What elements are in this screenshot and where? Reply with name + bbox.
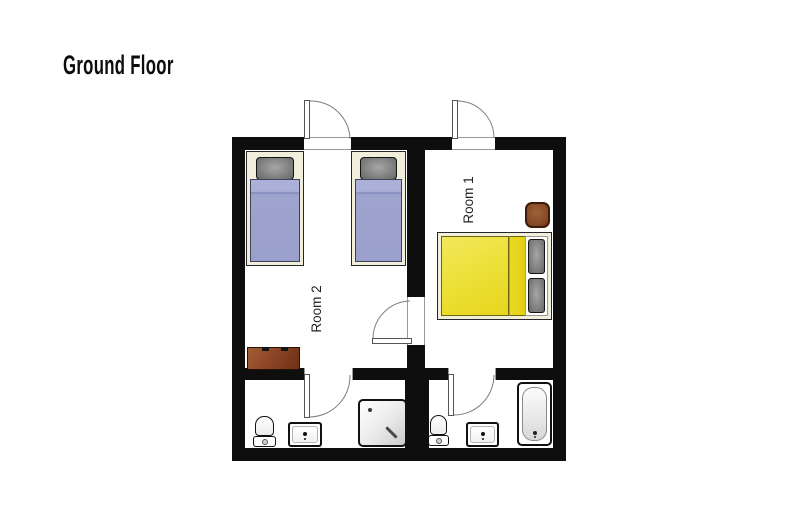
toilet-tank [253,436,276,447]
pillow [528,278,545,313]
room1-label: Room 1 [461,160,477,240]
door-left-bathroom [305,375,351,418]
double-bed [437,232,552,320]
sink-icon [466,422,499,447]
toilet-bowl [255,416,274,436]
toilet-icon [253,416,276,447]
floorplan: Room 2 Room 1 [0,0,799,532]
twin-bed-1 [246,151,304,266]
sink-icon [288,422,322,447]
door-room2-entrance [305,101,351,140]
door-right-bathroom [449,375,495,416]
door-room1-entrance [453,101,495,139]
toilet-tank [428,435,449,446]
floorplan-page: Ground Floor [0,0,799,532]
bathtub-icon [517,382,552,446]
yellow-duvet [441,236,509,316]
blue-duvet [355,179,402,262]
twin-bed-2 [351,151,406,266]
pillow [528,239,545,274]
shower-icon [358,399,407,447]
room2-label: Room 2 [309,269,325,349]
pillow [360,157,397,180]
duvet-fold [509,236,526,316]
blue-duvet [250,179,300,262]
pillow [256,157,294,180]
stool [525,202,550,228]
pillow-area [525,236,548,316]
toilet-bowl [430,415,447,435]
toilet-icon [428,415,449,446]
sideboard [247,347,300,370]
door-between-rooms [373,301,412,344]
